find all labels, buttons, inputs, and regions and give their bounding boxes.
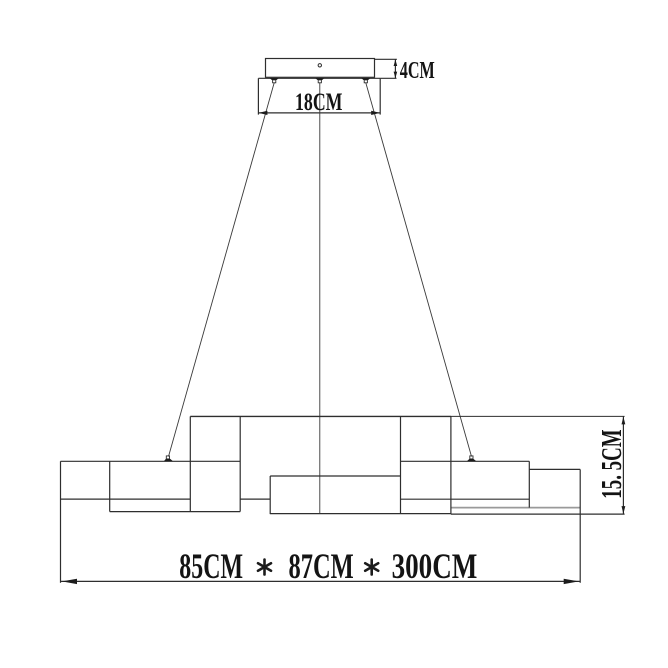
svg-text:300CM: 300CM bbox=[392, 546, 478, 586]
svg-text:87CM: 87CM bbox=[289, 546, 354, 586]
svg-text:15. 5CM: 15. 5CM bbox=[597, 429, 628, 498]
svg-text:4CM: 4CM bbox=[400, 57, 435, 84]
svg-text:18CM: 18CM bbox=[295, 89, 343, 116]
svg-text:85CM: 85CM bbox=[179, 546, 243, 586]
